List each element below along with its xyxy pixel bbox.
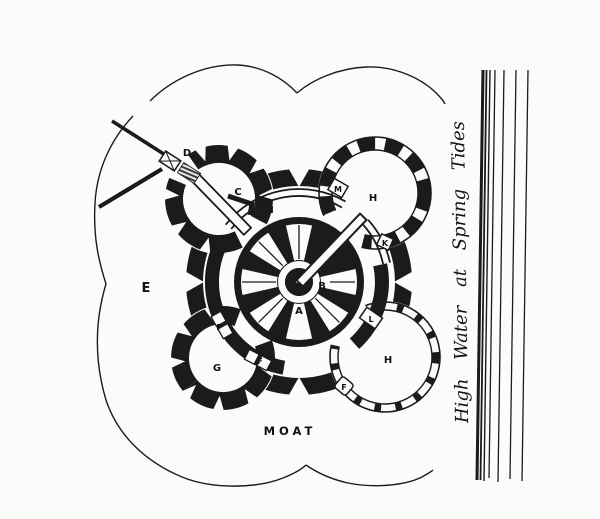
label-h-northeast: H (369, 193, 377, 204)
castle-plan-figure: A B C D E F F F G H H I K L M MOAT High … (0, 0, 600, 519)
label-m: M (334, 185, 342, 194)
moat-label: MOAT (264, 424, 317, 438)
label-e: E (142, 281, 151, 296)
label-h-southeast: H (384, 355, 392, 366)
label-k: K (382, 239, 389, 248)
label-g: G (213, 363, 221, 374)
label-l: L (368, 315, 373, 324)
shore-caption: High Water at Spring Tides (448, 121, 473, 424)
label-d: D (183, 148, 191, 159)
label-f-west: F (216, 323, 221, 332)
label-i: I (270, 205, 274, 216)
label-f-south: F (257, 357, 262, 366)
label-b: B (318, 281, 326, 292)
label-a: A (295, 306, 303, 317)
label-f-southeast: F (341, 383, 346, 392)
label-c: C (234, 187, 241, 198)
